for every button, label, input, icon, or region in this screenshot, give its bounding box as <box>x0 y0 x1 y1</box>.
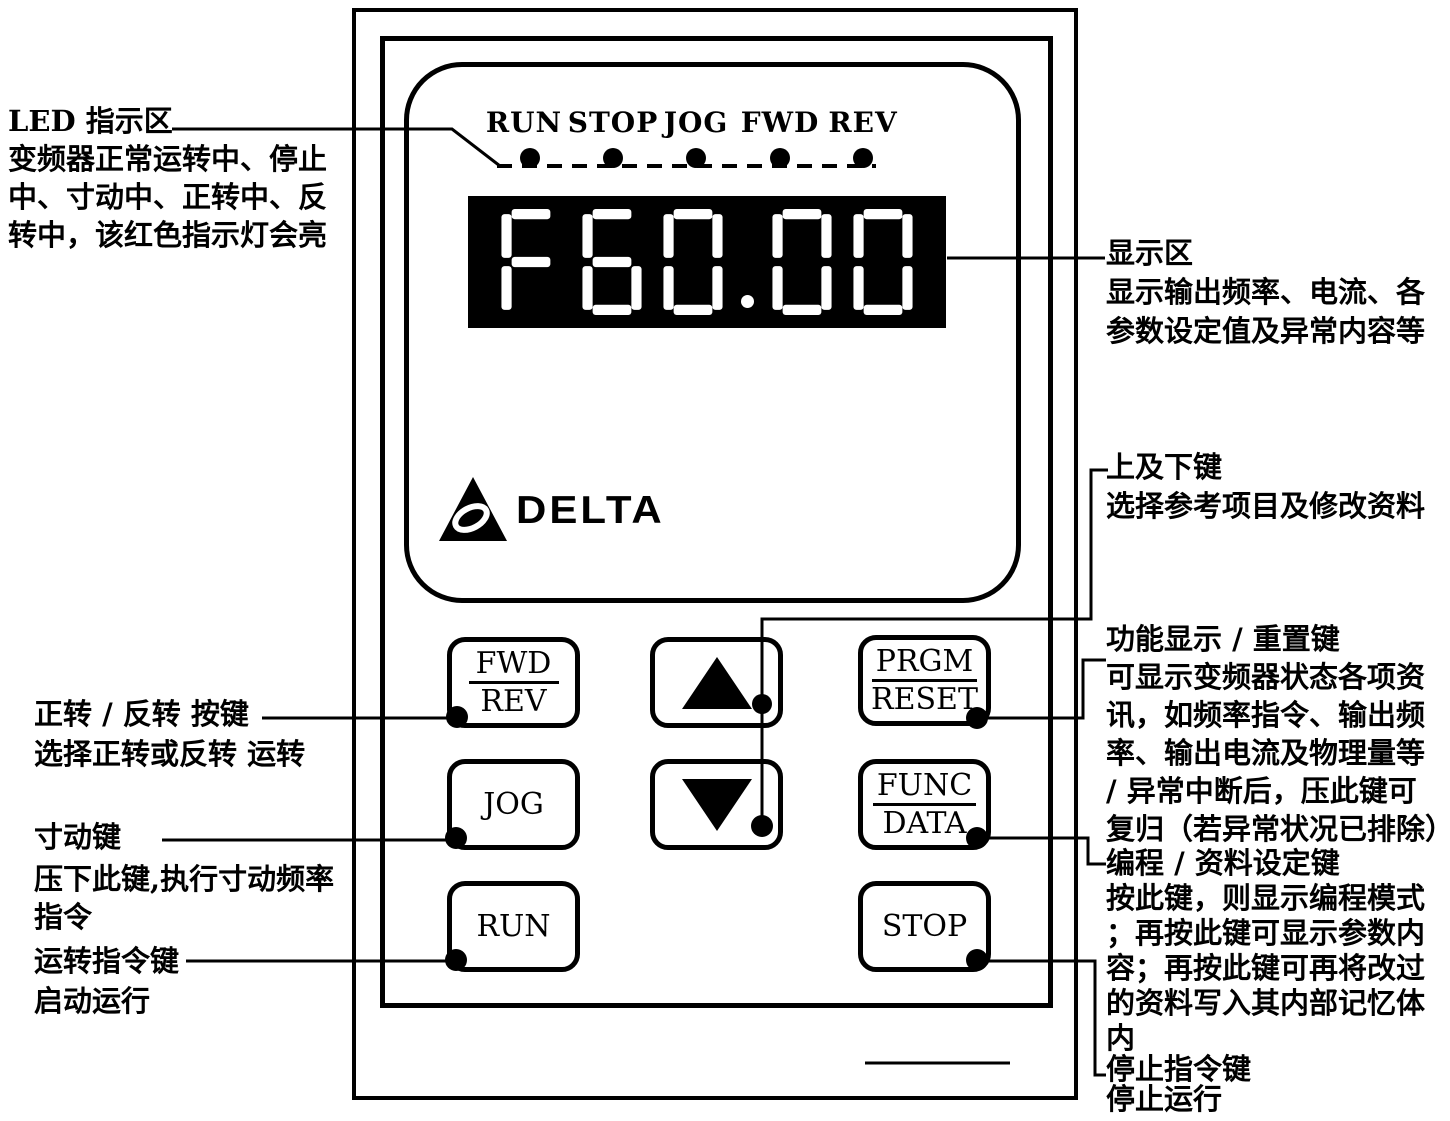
annotation-title: 停止指令键 <box>1106 1054 1251 1084</box>
down-key[interactable] <box>650 759 783 850</box>
seven-segment-display <box>468 196 946 328</box>
led-label-fwd: FWD <box>741 106 820 139</box>
annotation-prgm-data-key: 编程 / 资料设定键 按此键，则显示编程模式 ；再按此键可显示参数内 容；再按此… <box>1106 846 1425 1056</box>
display-digit-6 <box>579 209 645 315</box>
delta-triangle-icon <box>438 476 508 544</box>
display-digit-0 <box>660 209 726 315</box>
func-data-key-bottom-label: DATA <box>882 806 966 840</box>
annotation-title: 功能显示 / 重置键 <box>1106 620 1450 658</box>
brand-logo: DELTA <box>438 476 665 544</box>
annotation-stop-key: 停止指令键 停止运行 <box>1106 1054 1251 1114</box>
annotation-up-down-keys: 上及下键 选择参考项目及修改资料 <box>1106 448 1425 526</box>
stop-key[interactable]: STOP <box>858 881 991 972</box>
annotation-func-reset-key: 功能显示 / 重置键 可显示变频器状态各项资 讯，如频率指令、输出频 率、输出电… <box>1106 620 1450 848</box>
annotation-run-key-title: 运转指令键 <box>34 942 179 980</box>
stop-key-label: STOP <box>882 911 967 943</box>
jog-key[interactable]: JOG <box>447 759 580 850</box>
annotation-title: 上及下键 <box>1106 448 1425 487</box>
led-label-jog: JOG <box>664 106 729 139</box>
annotation-jog-key-body: 压下此键,执行寸动频率 指令 <box>34 860 334 936</box>
display-digit-0 <box>769 209 835 315</box>
display-decimal-point <box>741 295 754 308</box>
fwd-rev-key[interactable]: FWD REV <box>447 637 580 728</box>
annotation-display-area: 显示区 显示输出频率、电流、各 参数设定值及异常内容等 <box>1106 234 1425 351</box>
func-data-key-top-label: FUNC <box>873 770 976 807</box>
led-label-rev: REV <box>828 106 897 139</box>
annotation-title: 显示区 <box>1106 234 1425 273</box>
prgm-reset-key-top-label: PRGM <box>872 646 977 683</box>
run-key[interactable]: RUN <box>447 881 580 972</box>
prgm-reset-key[interactable]: PRGM RESET <box>858 635 991 726</box>
display-digit-0 <box>850 209 916 315</box>
annotation-led-area: LED 指示区 变频器正常运转中、停止 中、寸动中、正转中、反 转中，该红色指示… <box>8 102 327 254</box>
fwd-rev-key-bottom-label: REV <box>480 684 546 718</box>
annotation-run-key-body: 启动运行 <box>34 982 150 1020</box>
up-key[interactable] <box>650 637 783 728</box>
brand-name: DELTA <box>516 488 665 532</box>
run-key-label: RUN <box>476 911 550 943</box>
annotation-title: 正转 / 反转 按键 <box>34 694 305 734</box>
display-digit-F <box>498 209 564 315</box>
keypad-diagram: RUN STOP JOG FWD REV DELTA FWD REV PRGM … <box>0 0 1450 1121</box>
up-arrow-icon <box>682 657 752 709</box>
down-arrow-icon <box>682 779 752 831</box>
jog-key-label: JOG <box>483 789 544 821</box>
prgm-reset-key-bottom-label: RESET <box>871 682 978 716</box>
func-data-key[interactable]: FUNC DATA <box>858 759 991 850</box>
led-label-stop: STOP <box>568 106 659 139</box>
fwd-rev-key-top-label: FWD <box>469 648 559 685</box>
annotation-title: LED 指示区 <box>8 102 327 140</box>
annotation-title: 编程 / 资料设定键 <box>1106 846 1425 881</box>
led-label-run: RUN <box>486 106 562 139</box>
annotation-fwd-rev-key: 正转 / 反转 按键 选择正转或反转 运转 <box>34 694 305 774</box>
annotation-jog-key-title: 寸动键 <box>34 818 121 856</box>
